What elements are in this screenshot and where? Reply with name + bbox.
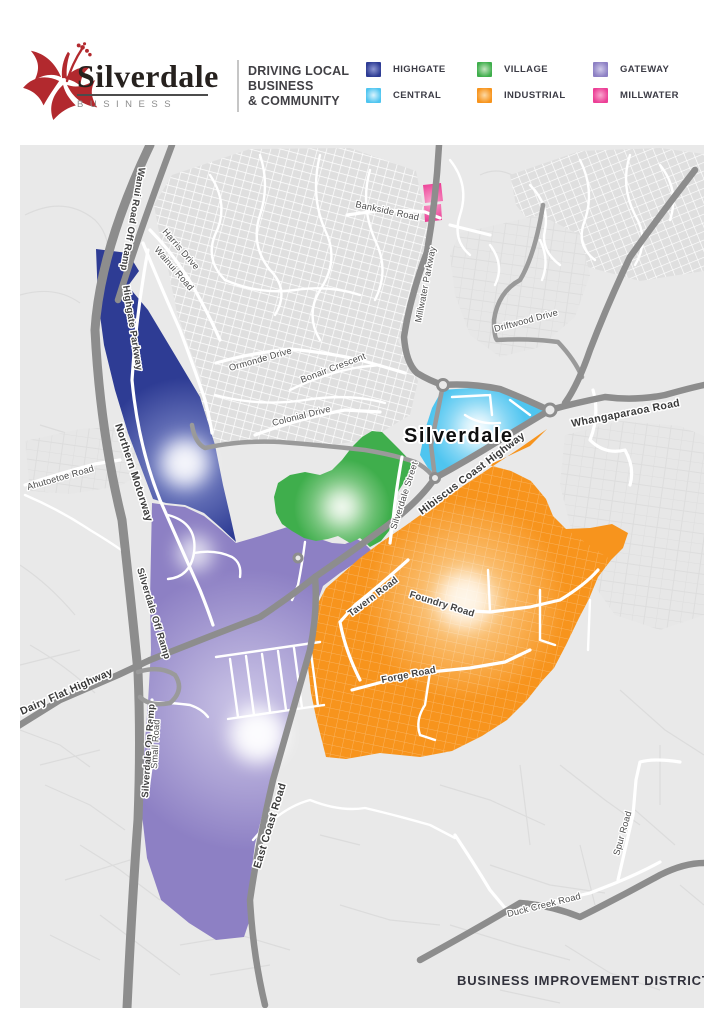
roundabout-j2 xyxy=(544,404,556,416)
legend-item-central: CENTRAL xyxy=(366,88,477,103)
tagline-line-3: & COMMUNITY xyxy=(248,94,349,109)
legend-item-millwater: MILLWATER xyxy=(593,88,679,103)
legend-item-gateway: GATEWAY xyxy=(593,62,679,77)
legend-label: MILLWATER xyxy=(620,90,679,101)
industrial-swatch-icon xyxy=(477,88,492,103)
central-swatch-icon xyxy=(366,88,381,103)
map-canvas: Wanui Road Off Ramp Harris Drive Wainui … xyxy=(20,145,704,1008)
highgate-swatch-icon xyxy=(366,62,381,77)
legend-item-highgate: HIGHGATE xyxy=(366,62,477,77)
flyer-page: Silverdale BUSINESS DRIVING LOCAL BUSINE… xyxy=(0,0,724,1024)
legend-item-village: VILLAGE xyxy=(477,62,593,77)
brand-subtitle: BUSINESS xyxy=(77,99,237,110)
district-map: Wanui Road Off Ramp Harris Drive Wainui … xyxy=(20,145,704,1008)
brand-rule xyxy=(77,94,208,96)
legend-label: GATEWAY xyxy=(620,64,669,75)
gateway-swatch-icon xyxy=(593,62,608,77)
legend-label: INDUSTRIAL xyxy=(504,90,566,101)
legend-item-industrial: INDUSTRIAL xyxy=(477,88,593,103)
legend-label: CENTRAL xyxy=(393,90,441,101)
village-swatch-icon xyxy=(477,62,492,77)
district-legend: HIGHGATE CENTRAL VILLAGE INDUSTRIAL GATE… xyxy=(366,62,679,103)
tagline-line-2: BUSINESS xyxy=(248,79,349,94)
tagline-line-1: DRIVING LOCAL xyxy=(248,64,349,79)
tagline: DRIVING LOCAL BUSINESS & COMMUNITY xyxy=(248,64,349,109)
roundabout-j1 xyxy=(438,380,449,391)
place-label-silverdale: Silverdale xyxy=(404,425,514,447)
brand-block: Silverdale BUSINESS xyxy=(77,60,237,110)
map-caption: BUSINESS IMPROVEMENT DISTRICT xyxy=(457,973,704,988)
header-divider xyxy=(237,60,239,112)
roundabout-r1 xyxy=(431,474,440,483)
legend-label: HIGHGATE xyxy=(393,64,446,75)
roundabout-village xyxy=(294,554,302,562)
legend-label: VILLAGE xyxy=(504,64,548,75)
millwater-swatch-icon xyxy=(593,88,608,103)
brand-name: Silverdale xyxy=(77,60,237,92)
